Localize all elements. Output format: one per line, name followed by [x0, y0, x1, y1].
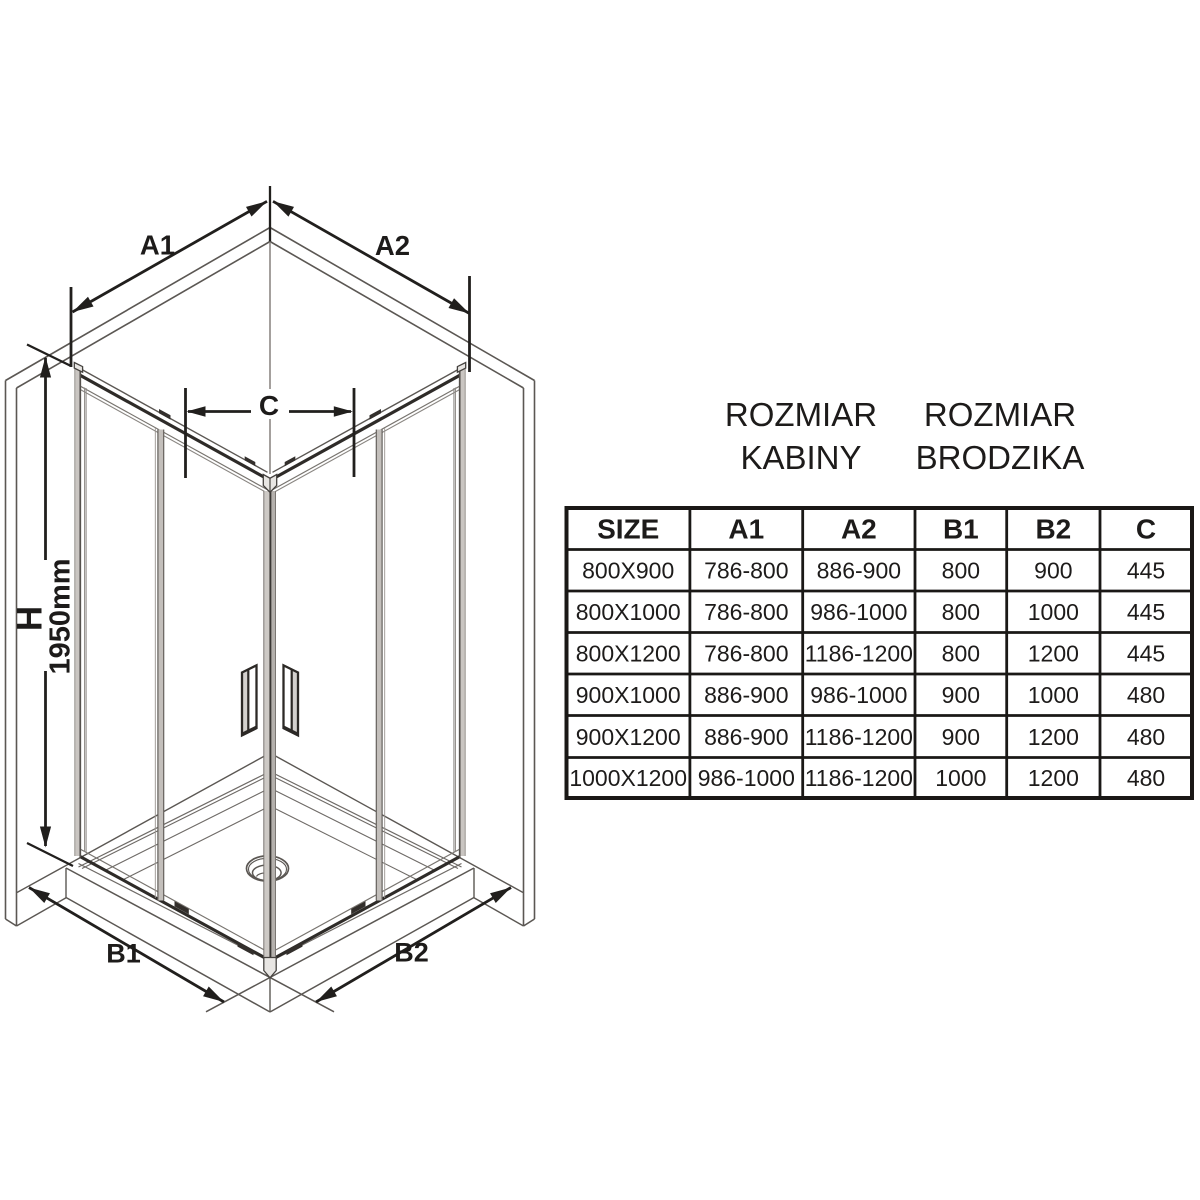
svg-text:445: 445	[1127, 599, 1165, 625]
svg-text:1186-1200: 1186-1200	[805, 724, 913, 750]
svg-text:900X1000: 900X1000	[576, 682, 681, 708]
svg-text:1000: 1000	[1028, 682, 1079, 708]
svg-text:ROZMIAR: ROZMIAR	[725, 396, 877, 433]
svg-text:1000: 1000	[1028, 599, 1079, 625]
svg-text:B1: B1	[943, 514, 979, 545]
svg-text:886-900: 886-900	[704, 682, 788, 708]
svg-text:SIZE: SIZE	[597, 514, 659, 545]
svg-text:986-1000: 986-1000	[810, 682, 907, 708]
svg-text:786-800: 786-800	[704, 599, 788, 625]
svg-text:786-800: 786-800	[704, 558, 788, 584]
svg-text:480: 480	[1127, 765, 1165, 791]
svg-text:900: 900	[942, 724, 980, 750]
svg-text:C: C	[1136, 514, 1156, 545]
svg-text:KABINY: KABINY	[740, 439, 861, 476]
svg-text:C: C	[259, 390, 279, 421]
svg-text:886-900: 886-900	[817, 558, 901, 584]
svg-text:900X1200: 900X1200	[576, 724, 681, 750]
svg-text:1200: 1200	[1028, 724, 1079, 750]
svg-text:480: 480	[1127, 682, 1165, 708]
svg-text:A1: A1	[728, 514, 764, 545]
svg-text:900: 900	[1034, 558, 1072, 584]
svg-text:A1: A1	[140, 230, 175, 261]
svg-text:900: 900	[942, 682, 980, 708]
svg-text:B1: B1	[106, 939, 141, 969]
svg-text:B2: B2	[1035, 514, 1071, 545]
svg-text:786-800: 786-800	[704, 641, 788, 667]
svg-text:800X900: 800X900	[582, 558, 674, 584]
svg-text:480: 480	[1127, 724, 1165, 750]
svg-text:886-900: 886-900	[704, 724, 788, 750]
svg-text:1200: 1200	[1028, 641, 1079, 667]
svg-text:B2: B2	[394, 938, 429, 968]
svg-text:ROZMIAR: ROZMIAR	[924, 396, 1076, 433]
svg-text:986-1000: 986-1000	[698, 765, 795, 791]
svg-text:800: 800	[942, 641, 980, 667]
svg-text:800: 800	[942, 599, 980, 625]
svg-text:BRODZIKA: BRODZIKA	[916, 439, 1085, 476]
svg-text:1950mm: 1950mm	[45, 558, 77, 674]
svg-text:1200: 1200	[1028, 765, 1079, 791]
svg-text:1186-1200: 1186-1200	[805, 641, 913, 667]
svg-text:A2: A2	[375, 230, 410, 261]
svg-text:986-1000: 986-1000	[810, 599, 907, 625]
svg-text:800X1200: 800X1200	[576, 641, 681, 667]
svg-text:800X1000: 800X1000	[576, 599, 681, 625]
svg-text:1000: 1000	[935, 765, 986, 791]
svg-text:445: 445	[1127, 641, 1165, 667]
svg-text:A2: A2	[841, 514, 877, 545]
svg-text:800: 800	[942, 558, 980, 584]
svg-text:1186-1200: 1186-1200	[805, 765, 913, 791]
svg-text:1000X1200: 1000X1200	[569, 765, 687, 791]
svg-text:445: 445	[1127, 558, 1165, 584]
